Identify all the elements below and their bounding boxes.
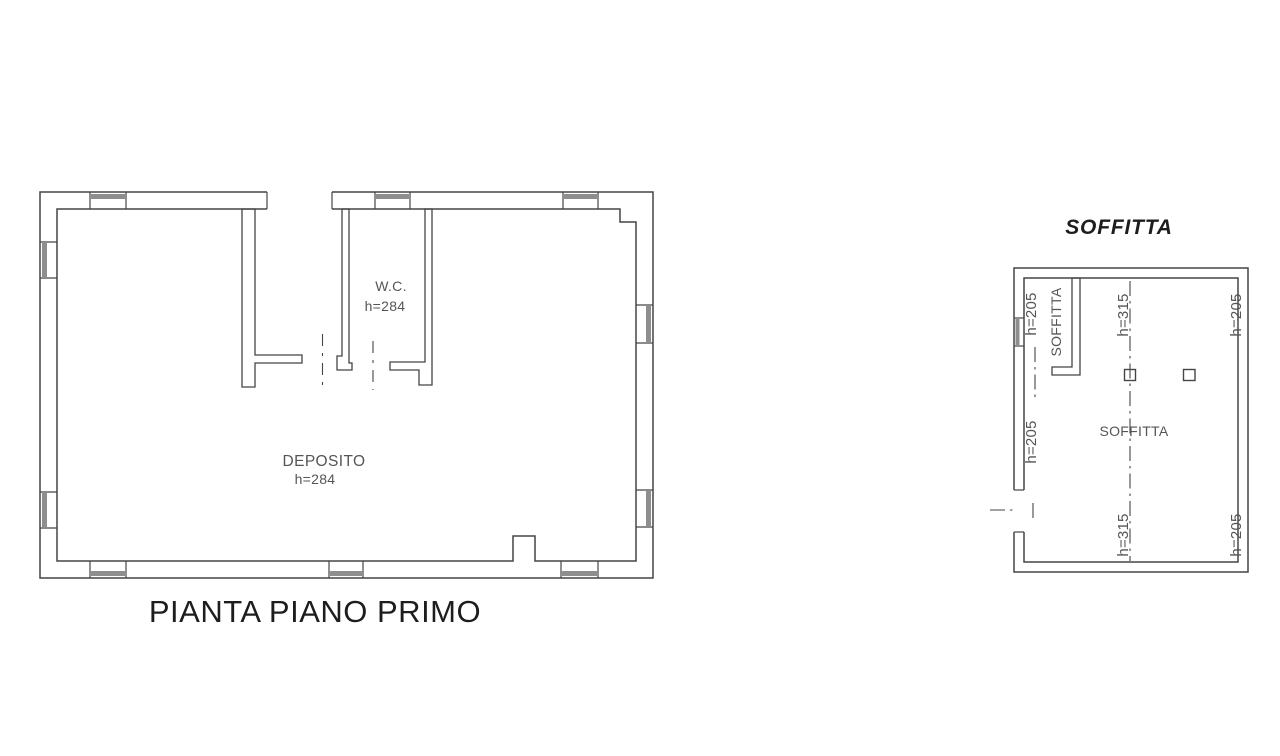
inner-wall [57,209,636,561]
attic-plan-title: SOFFITTA [1065,216,1173,239]
attic-height-top-right: h=205 [1228,293,1245,336]
window [40,492,57,528]
wc-room-label: W.C. [375,278,407,294]
window [375,192,410,209]
attic-small-room-label: SOFFITTA [1048,287,1064,356]
window [329,561,363,578]
wc-room-height: h=284 [365,298,406,314]
attic-room-label: SOFFITTA [1099,423,1168,439]
window [563,192,598,209]
partition-wall [242,209,302,387]
pillar-square [1184,370,1196,381]
first-floor-plan: W.C. h=284 DEPOSITO h=284 PIANTA PIANO P… [40,192,653,629]
window [90,192,126,209]
window [40,242,57,278]
window [90,561,126,578]
first-floor-plan-title: PIANTA PIANO PRIMO [149,594,481,629]
attic-height-mid-left: h=205 [1023,420,1040,463]
attic-height-bottom-center: h=315 [1115,513,1132,556]
deposito-room-height: h=284 [295,471,336,487]
attic-plan: h=205 SOFFITTA h=315 h=205 h=205 h=315 h… [990,216,1248,572]
floor-plan-drawing: W.C. h=284 DEPOSITO h=284 PIANTA PIANO P… [0,0,1280,756]
window [561,561,598,578]
window [636,305,653,343]
wc-right-wall [390,209,432,385]
outer-wall [40,192,653,578]
wc-left-wall [337,209,352,370]
floor-plan-svg: W.C. h=284 DEPOSITO h=284 PIANTA PIANO P… [0,0,1280,756]
attic-height-bottom-right: h=205 [1228,513,1245,556]
attic-height-top-left: h=205 [1023,292,1040,335]
deposito-room-label: DEPOSITO [282,453,365,470]
attic-height-top-center: h=315 [1115,293,1132,336]
window [636,490,653,527]
